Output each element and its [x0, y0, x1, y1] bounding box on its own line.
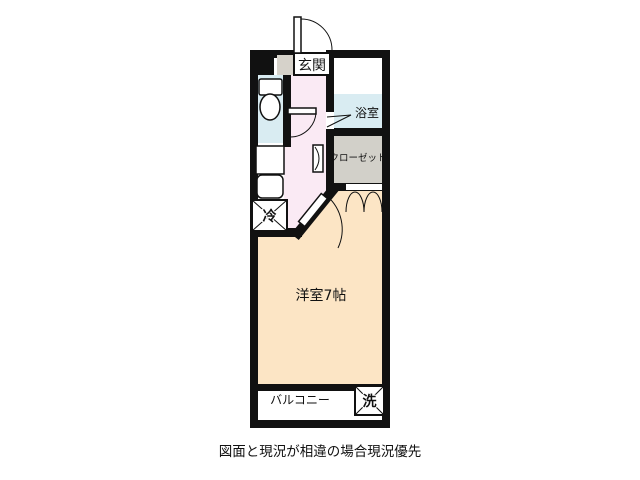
floorplan-drawing: 玄関	[0, 0, 640, 480]
hall-door-symbol	[313, 145, 323, 172]
main-room-label: 洋室7帖	[296, 287, 347, 304]
toilet-tank	[259, 79, 282, 95]
toilet	[259, 79, 282, 120]
wall-bottom	[250, 420, 390, 428]
refrigerator-label: 冷	[263, 208, 277, 225]
floorplan-page: 玄関	[0, 0, 640, 480]
wall-right	[382, 50, 390, 428]
closet-opening	[346, 183, 382, 191]
entrance-label: 玄関	[298, 57, 326, 74]
wall-bath-closet-divider	[326, 128, 384, 136]
kitchen-sink	[257, 175, 283, 198]
washing-machine: 洗	[355, 386, 384, 415]
kitchen-counter	[256, 146, 284, 174]
refrigerator: 冷	[252, 200, 287, 231]
bathtub-area-floor	[333, 56, 383, 94]
entrance-door-arc	[301, 19, 332, 50]
entrance-strip: 玄関	[253, 53, 330, 75]
bathroom-label: 浴室	[355, 105, 379, 120]
hall-door-symbol-box	[313, 145, 323, 172]
washer-label: 洗	[363, 393, 377, 410]
wall-top-right	[330, 50, 390, 58]
entrance-door-leaf	[294, 17, 301, 53]
pipe-shaft-box	[253, 55, 274, 75]
kitchen	[256, 146, 284, 198]
wall-left	[250, 50, 258, 428]
toilet-door-leaf	[288, 108, 316, 114]
entrance-door	[294, 17, 332, 53]
toilet-bowl	[260, 94, 280, 120]
meter-box	[277, 55, 294, 75]
balcony-label: バルコニー	[270, 393, 330, 407]
disclaimer-caption: 図面と現況が相違の場合現況優先	[219, 444, 422, 460]
closet-label: クローゼット	[329, 152, 386, 164]
